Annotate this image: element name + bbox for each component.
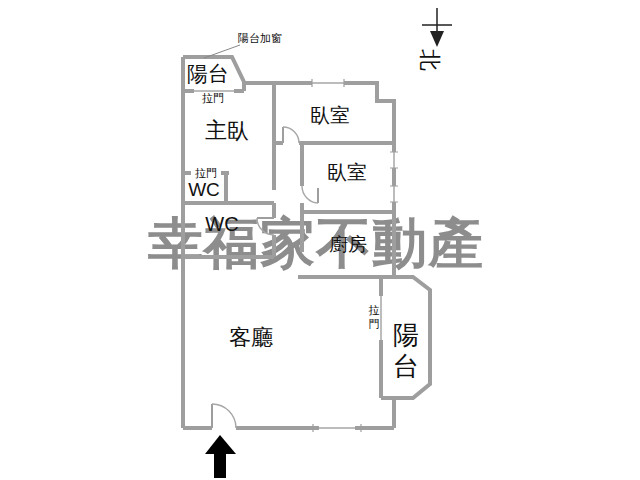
north-label: 北 <box>417 49 442 71</box>
room-label-balcony-right-char2: 台 <box>393 351 419 381</box>
balcony-window-annotation: 陽台加窗 <box>238 32 282 44</box>
entrance-arrow-shaft <box>214 452 226 478</box>
door-label-balcony-right-sliding-char2: 門 <box>369 318 380 330</box>
entrance-door-arc <box>212 404 236 428</box>
room-label-wc-upper: WC <box>188 179 220 200</box>
bedroom-lower-door-arc <box>302 186 318 203</box>
bedroom-upper-door-arc <box>283 127 299 143</box>
watermark-text: 幸福家不動產 <box>147 212 484 274</box>
door-label-balcony-right-sliding-char1: 拉 <box>369 304 380 316</box>
window-end-ticks <box>312 79 398 202</box>
floor-plan-canvas: 幸福家不動產 陽台加窗 北 陽台 拉門 主臥 臥室 臥室 拉門 WC WC 廚房… <box>0 0 640 480</box>
door-label-wc-upper-sliding: 拉門 <box>195 167 217 179</box>
room-label-balcony-top-left: 陽台 <box>187 62 229 85</box>
room-label-bedroom-lower: 臥室 <box>327 161 367 183</box>
entrance-arrow-head <box>205 435 236 454</box>
room-label-living-room: 客廳 <box>229 325 273 350</box>
room-label-balcony-right-char1: 陽 <box>393 320 419 350</box>
room-label-bedroom-upper: 臥室 <box>310 104 350 126</box>
floor-plan-image: 幸福家不動產 陽台加窗 北 陽台 拉門 主臥 臥室 臥室 拉門 WC WC 廚房… <box>0 0 640 480</box>
room-label-kitchen: 廚房 <box>329 234 367 255</box>
door-label-balcony-top-sliding: 拉門 <box>202 92 224 104</box>
room-label-master-bedroom: 主臥 <box>205 118 249 143</box>
north-arrow-head <box>430 31 444 47</box>
room-label-wc-lower: WC <box>205 213 238 235</box>
